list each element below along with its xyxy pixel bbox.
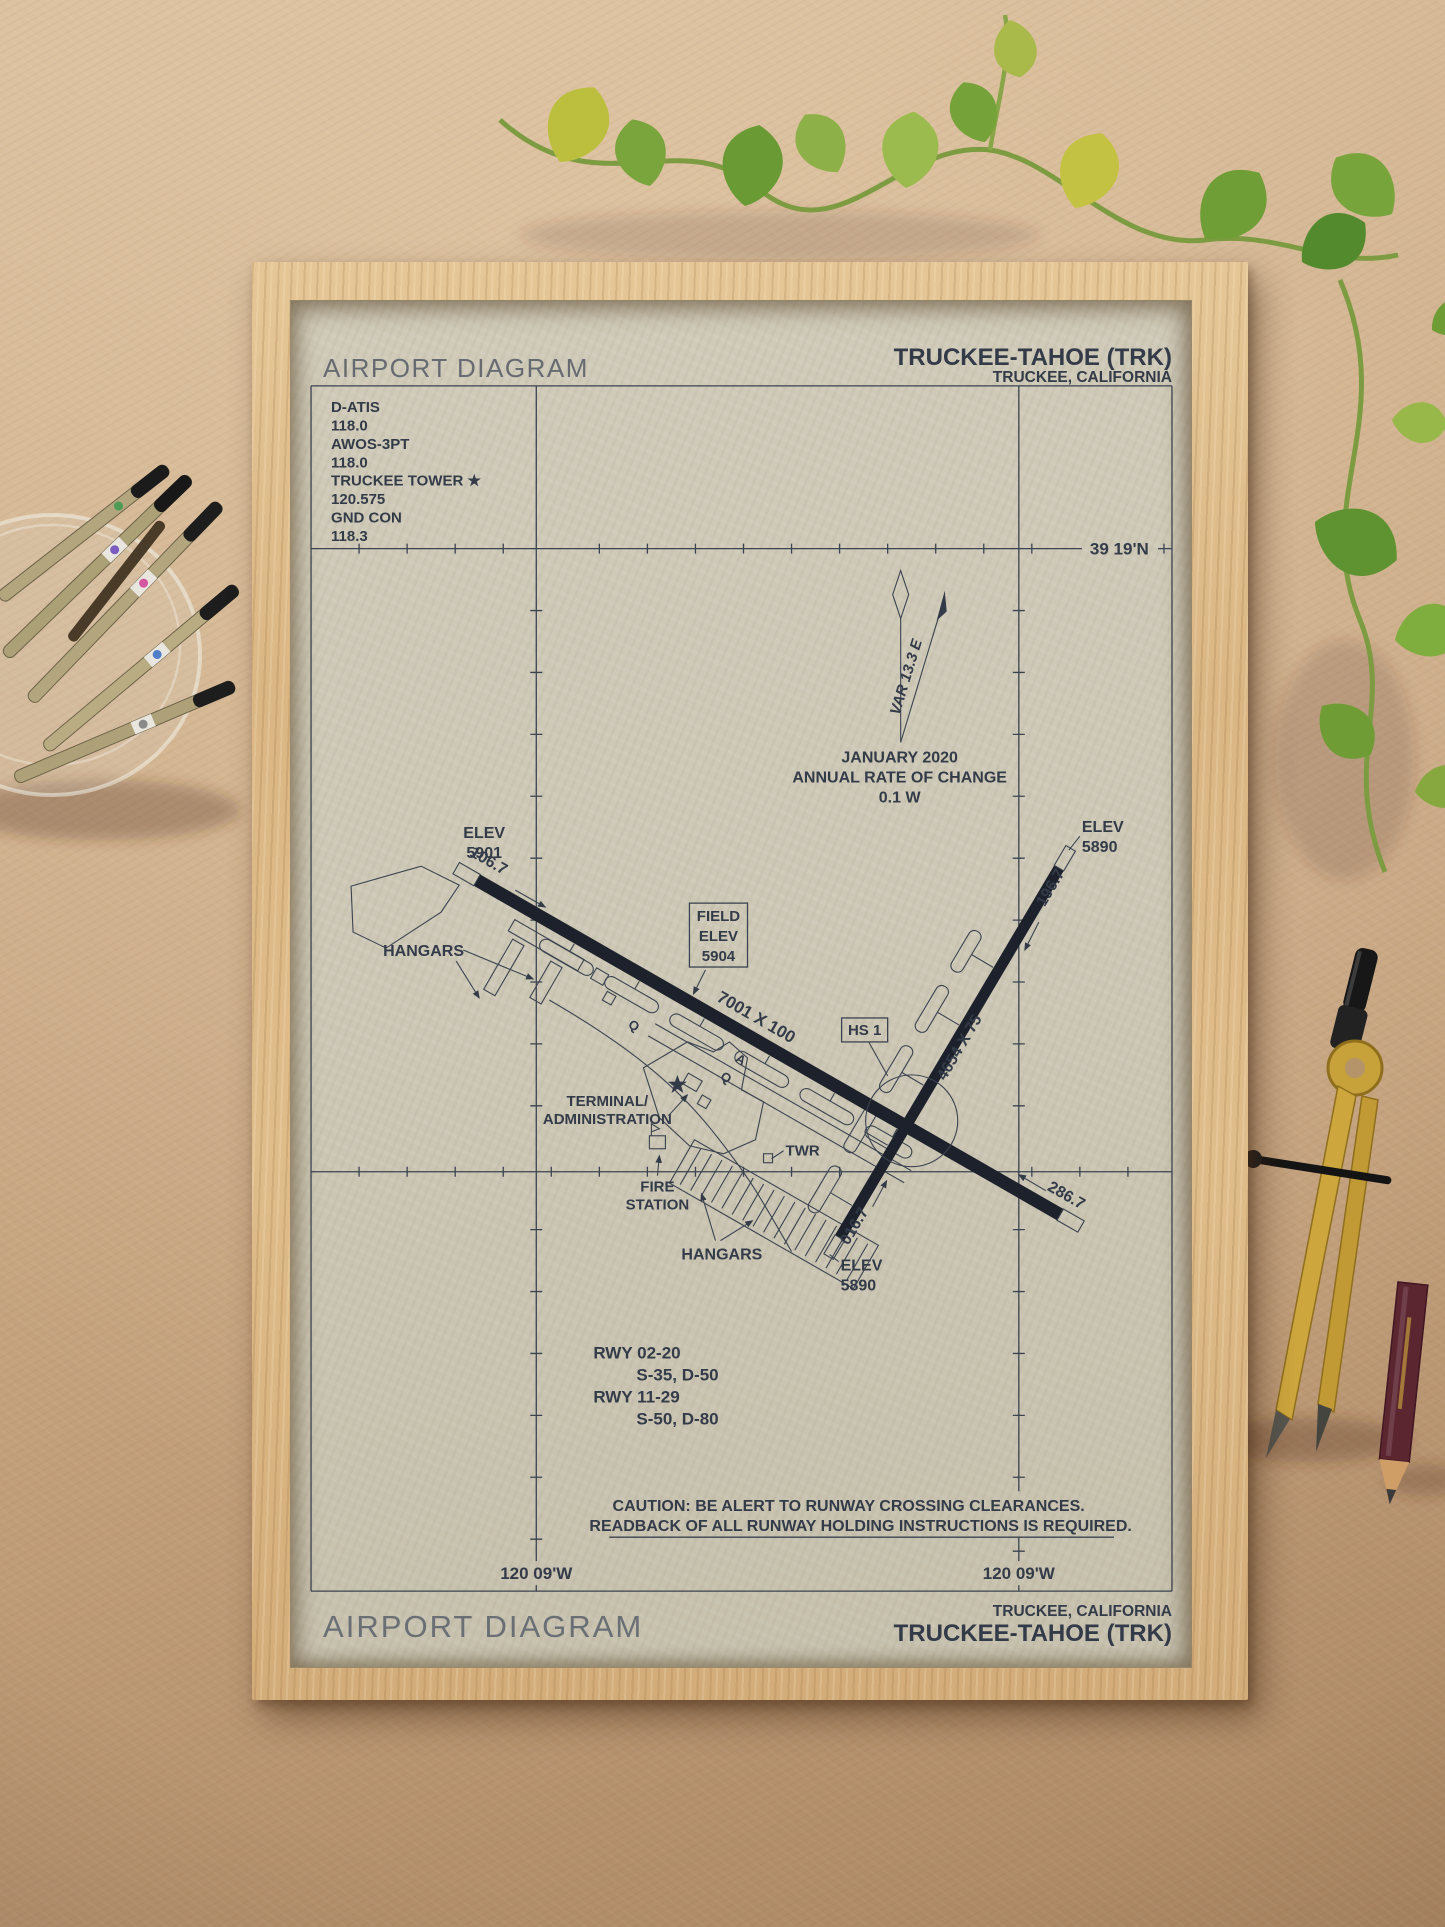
elev-rwy11-value: 5901 bbox=[466, 845, 502, 862]
rwy-info-line: RWY 02-20 bbox=[593, 1343, 680, 1362]
true-north-arrow bbox=[893, 571, 909, 619]
comm-frequency-box: D-ATIS 118.0 AWOS-3PT 118.0 TRUCKEE TOWE… bbox=[331, 399, 481, 545]
longitude-line-right bbox=[1013, 386, 1025, 1591]
page-title: AIRPORT DIAGRAM bbox=[323, 353, 589, 383]
runway-dimension-02-20: 4654 X 75 bbox=[934, 1012, 986, 1083]
field-elev-line: ELEV bbox=[699, 928, 738, 945]
freq-line: D-ATIS bbox=[331, 399, 380, 416]
longitude-label-left: 120 09'W bbox=[500, 1564, 573, 1583]
freq-line: TRUCKEE TOWER ★ bbox=[331, 473, 481, 490]
upper-hangar-buildings bbox=[477, 920, 624, 1049]
elev-rwy20: ELEV bbox=[1082, 819, 1124, 836]
elev-rwy02: ELEV bbox=[841, 1258, 883, 1275]
freq-line: 120.575 bbox=[331, 491, 385, 508]
rwy-info-line: RWY 11-29 bbox=[593, 1387, 679, 1406]
taxiway-row-0220 bbox=[806, 928, 1005, 1228]
footer-airport: TRUCKEE-TAHOE (TRK) bbox=[894, 1620, 1172, 1647]
fire-station-label-line2: STATION bbox=[626, 1197, 690, 1214]
airport-city: TRUCKEE, CALIFORNIA bbox=[993, 369, 1172, 386]
freq-line: 118.0 bbox=[331, 417, 368, 434]
diagram-paper: AIRPORT DIAGRAM TRUCKEE-TAHOE (TRK) TRUC… bbox=[290, 300, 1192, 1668]
drafting-compass bbox=[1243, 946, 1393, 1458]
terminal-buildings bbox=[677, 1073, 717, 1109]
hs1-label: HS 1 bbox=[848, 1022, 881, 1039]
elev-rwy11: ELEV bbox=[463, 825, 505, 842]
compass-knob bbox=[1329, 946, 1383, 1054]
freq-line: AWOS-3PT bbox=[331, 436, 409, 453]
airport-name: TRUCKEE-TAHOE (TRK) bbox=[894, 344, 1172, 371]
variation-rate-value: 0.1 W bbox=[879, 789, 922, 806]
runway-11-29 bbox=[453, 863, 1084, 1233]
tower-label: TWR bbox=[786, 1143, 820, 1160]
terminal-label-line2: ADMINISTRATION bbox=[543, 1111, 672, 1128]
caution-line2: READBACK OF ALL RUNWAY HOLDING INSTRUCTI… bbox=[589, 1518, 1131, 1535]
runway-heading-20: 196.7 bbox=[1033, 866, 1068, 909]
chart-borders bbox=[311, 386, 1172, 1591]
field-elev-line: FIELD bbox=[697, 908, 741, 925]
rwy-info-line: S-50, D-80 bbox=[636, 1409, 718, 1428]
variation-rate: ANNUAL RATE OF CHANGE bbox=[792, 769, 1007, 786]
elev-rwy20-value: 5890 bbox=[1082, 839, 1118, 856]
hangars-upper-label: HANGARS bbox=[383, 943, 464, 960]
fire-station-label-line1: FIRE bbox=[640, 1179, 674, 1196]
airport-diagram-chart: AIRPORT DIAGRAM TRUCKEE-TAHOE (TRK) TRUC… bbox=[291, 301, 1191, 1667]
photo-scene: AIRPORT DIAGRAM TRUCKEE-TAHOE (TRK) TRUC… bbox=[0, 0, 1445, 1927]
caution-line1: CAUTION: BE ALERT TO RUNWAY CROSSING CLE… bbox=[613, 1498, 1085, 1515]
compass-hinge-hole bbox=[1345, 1058, 1365, 1078]
west-parcel-outline bbox=[351, 866, 459, 948]
footer-title: AIRPORT DIAGRAM bbox=[323, 1609, 643, 1644]
terminal-label-line1: TERMINAL/ bbox=[567, 1093, 650, 1110]
buildings bbox=[477, 920, 879, 1289]
latitude-line-39-19N bbox=[311, 544, 1172, 554]
latitude-label: 39 19'N bbox=[1090, 540, 1149, 559]
magnetic-north-barb bbox=[937, 591, 947, 621]
longitude-label-right: 120 09'W bbox=[983, 1564, 1056, 1583]
freq-line: 118.0 bbox=[331, 454, 368, 471]
runway-data-block: RWY 02-20 S-35, D-50 RWY 11-29 S-50, D-8… bbox=[593, 1343, 718, 1428]
footer-city: TRUCKEE, CALIFORNIA bbox=[993, 1603, 1172, 1620]
hangars-lower-label: HANGARS bbox=[681, 1247, 762, 1264]
longitude-line-left bbox=[530, 386, 542, 1591]
variation-compass: VAR 13.3 E JANUARY 2020 ANNUAL RATE OF C… bbox=[792, 571, 1007, 807]
variation-date: JANUARY 2020 bbox=[841, 749, 958, 766]
tower-building bbox=[764, 1154, 773, 1163]
pen-jar bbox=[0, 462, 241, 795]
caution-note: CAUTION: BE ALERT TO RUNWAY CROSSING CLE… bbox=[589, 1498, 1131, 1537]
vine-leaves-right bbox=[1301, 291, 1445, 813]
taxiway-q-label: Q bbox=[626, 1017, 642, 1035]
field-elev-line: 5904 bbox=[702, 948, 736, 965]
elev-rwy02-value: 5890 bbox=[841, 1278, 877, 1295]
freq-line: GND CON bbox=[331, 510, 402, 527]
freq-line: 118.3 bbox=[331, 528, 368, 545]
field-elevation-box: FIELD ELEV 5904 bbox=[689, 903, 747, 967]
taxiway-network bbox=[351, 866, 1005, 1251]
hs1-box: HS 1 bbox=[842, 1018, 888, 1042]
picture-frame: AIRPORT DIAGRAM TRUCKEE-TAHOE (TRK) TRUC… bbox=[252, 262, 1248, 1700]
rwy-info-line: S-35, D-50 bbox=[636, 1365, 718, 1384]
